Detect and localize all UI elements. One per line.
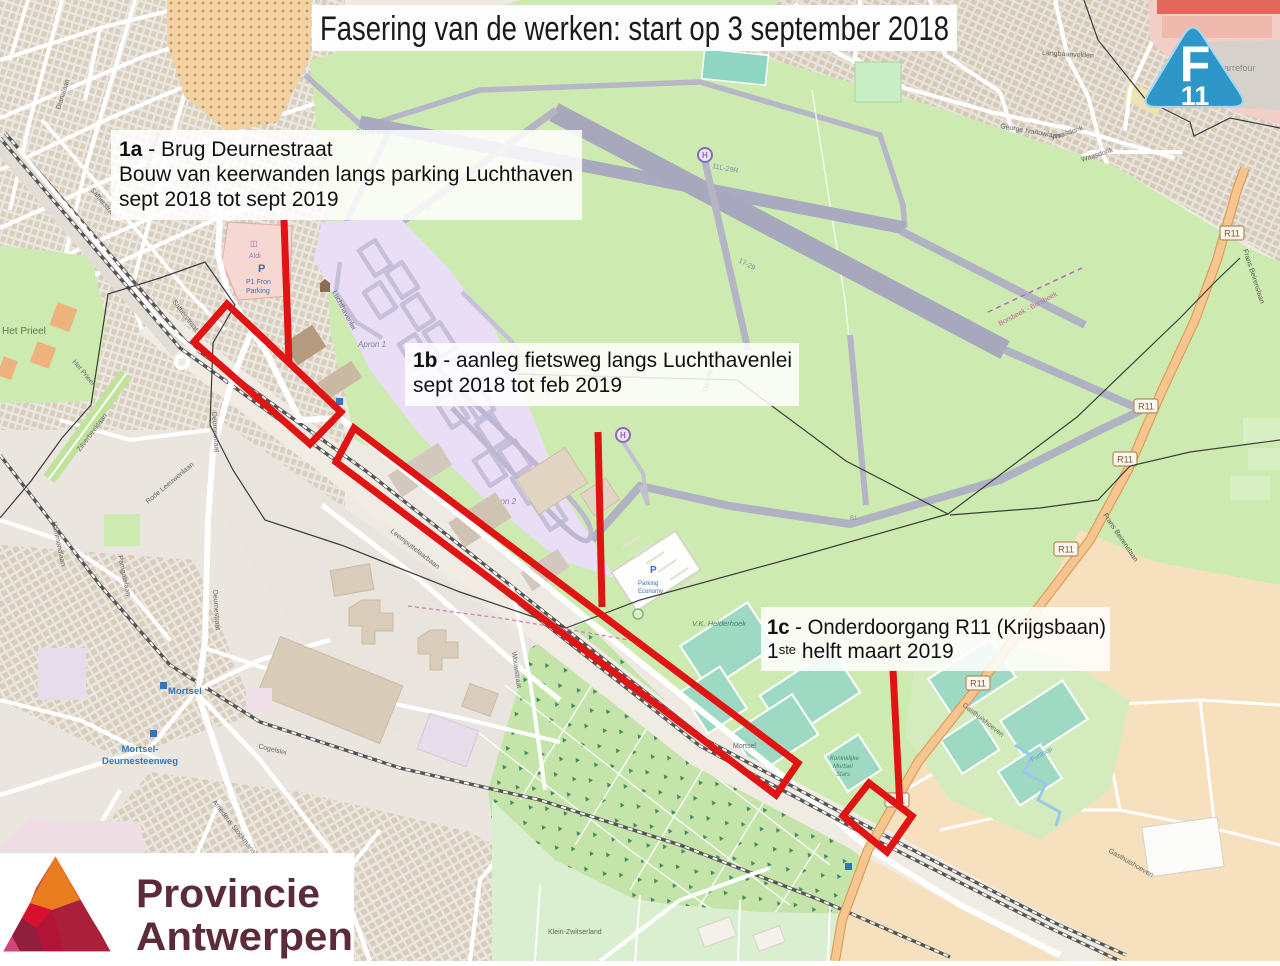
- svg-text:Aldi: Aldi: [249, 253, 261, 260]
- svg-text:1c - Onderdoorgang R11 (Krijgs: 1c - Onderdoorgang R11 (Krijgsbaan): [767, 616, 1106, 639]
- svg-text:Mortsel-: Mortsel-: [122, 744, 159, 755]
- svg-text:sept 2018 tot sept 2019: sept 2018 tot sept 2019: [119, 188, 339, 211]
- svg-text:P1 Fron: P1 Fron: [246, 279, 271, 286]
- svg-text:Koninklijke: Koninklijke: [830, 756, 859, 762]
- svg-text:H: H: [620, 431, 626, 440]
- svg-text:Parking: Parking: [246, 288, 270, 295]
- svg-text:Mortsel: Mortsel: [733, 743, 756, 750]
- svg-text:Het Prieel: Het Prieel: [2, 326, 46, 337]
- svg-text:Parking: Parking: [638, 581, 658, 587]
- svg-text:Deurnesteenweg: Deurnesteenweg: [102, 756, 178, 767]
- svg-text:Antwerpen: Antwerpen: [136, 915, 353, 959]
- svg-text:Klein-Zwitserland: Klein-Zwitserland: [548, 929, 602, 936]
- svg-text:R11: R11: [1058, 545, 1074, 555]
- svg-text:P: P: [258, 263, 265, 275]
- svg-text:◫: ◫: [250, 239, 258, 248]
- svg-text:R11: R11: [1224, 229, 1240, 239]
- svg-text:R11: R11: [1117, 455, 1133, 465]
- svg-text:11: 11: [1181, 81, 1210, 111]
- svg-text:R11: R11: [970, 679, 986, 689]
- svg-text:Apron 1: Apron 1: [357, 340, 386, 349]
- svg-text:V.K. Helderhoek: V.K. Helderhoek: [692, 619, 747, 628]
- svg-text:Provincie: Provincie: [136, 872, 320, 916]
- svg-text:1b - aanleg fietsweg langs Luc: 1b - aanleg fietsweg langs Luchthavenlei: [413, 349, 792, 372]
- svg-text:sept 2018 tot feb 2019: sept 2018 tot feb 2019: [413, 374, 622, 397]
- svg-text:arrefour: arrefour: [1224, 63, 1256, 73]
- svg-text:Bouw van keerwanden langs park: Bouw van keerwanden langs parking Luchth…: [119, 163, 573, 186]
- svg-text:Mortsel: Mortsel: [168, 686, 202, 697]
- svg-text:1a - Brug Deurnestraat: 1a - Brug Deurnestraat: [119, 138, 333, 161]
- svg-text:Fasering van de werken: start: Fasering van de werken: start op 3 septe…: [320, 10, 949, 48]
- svg-text:R11: R11: [1138, 402, 1154, 412]
- svg-text:Mortsel: Mortsel: [833, 764, 853, 770]
- svg-text:H: H: [702, 151, 708, 160]
- svg-text:Stars: Stars: [836, 772, 850, 778]
- svg-text:B1: B1: [850, 516, 858, 522]
- svg-text:P: P: [650, 565, 657, 576]
